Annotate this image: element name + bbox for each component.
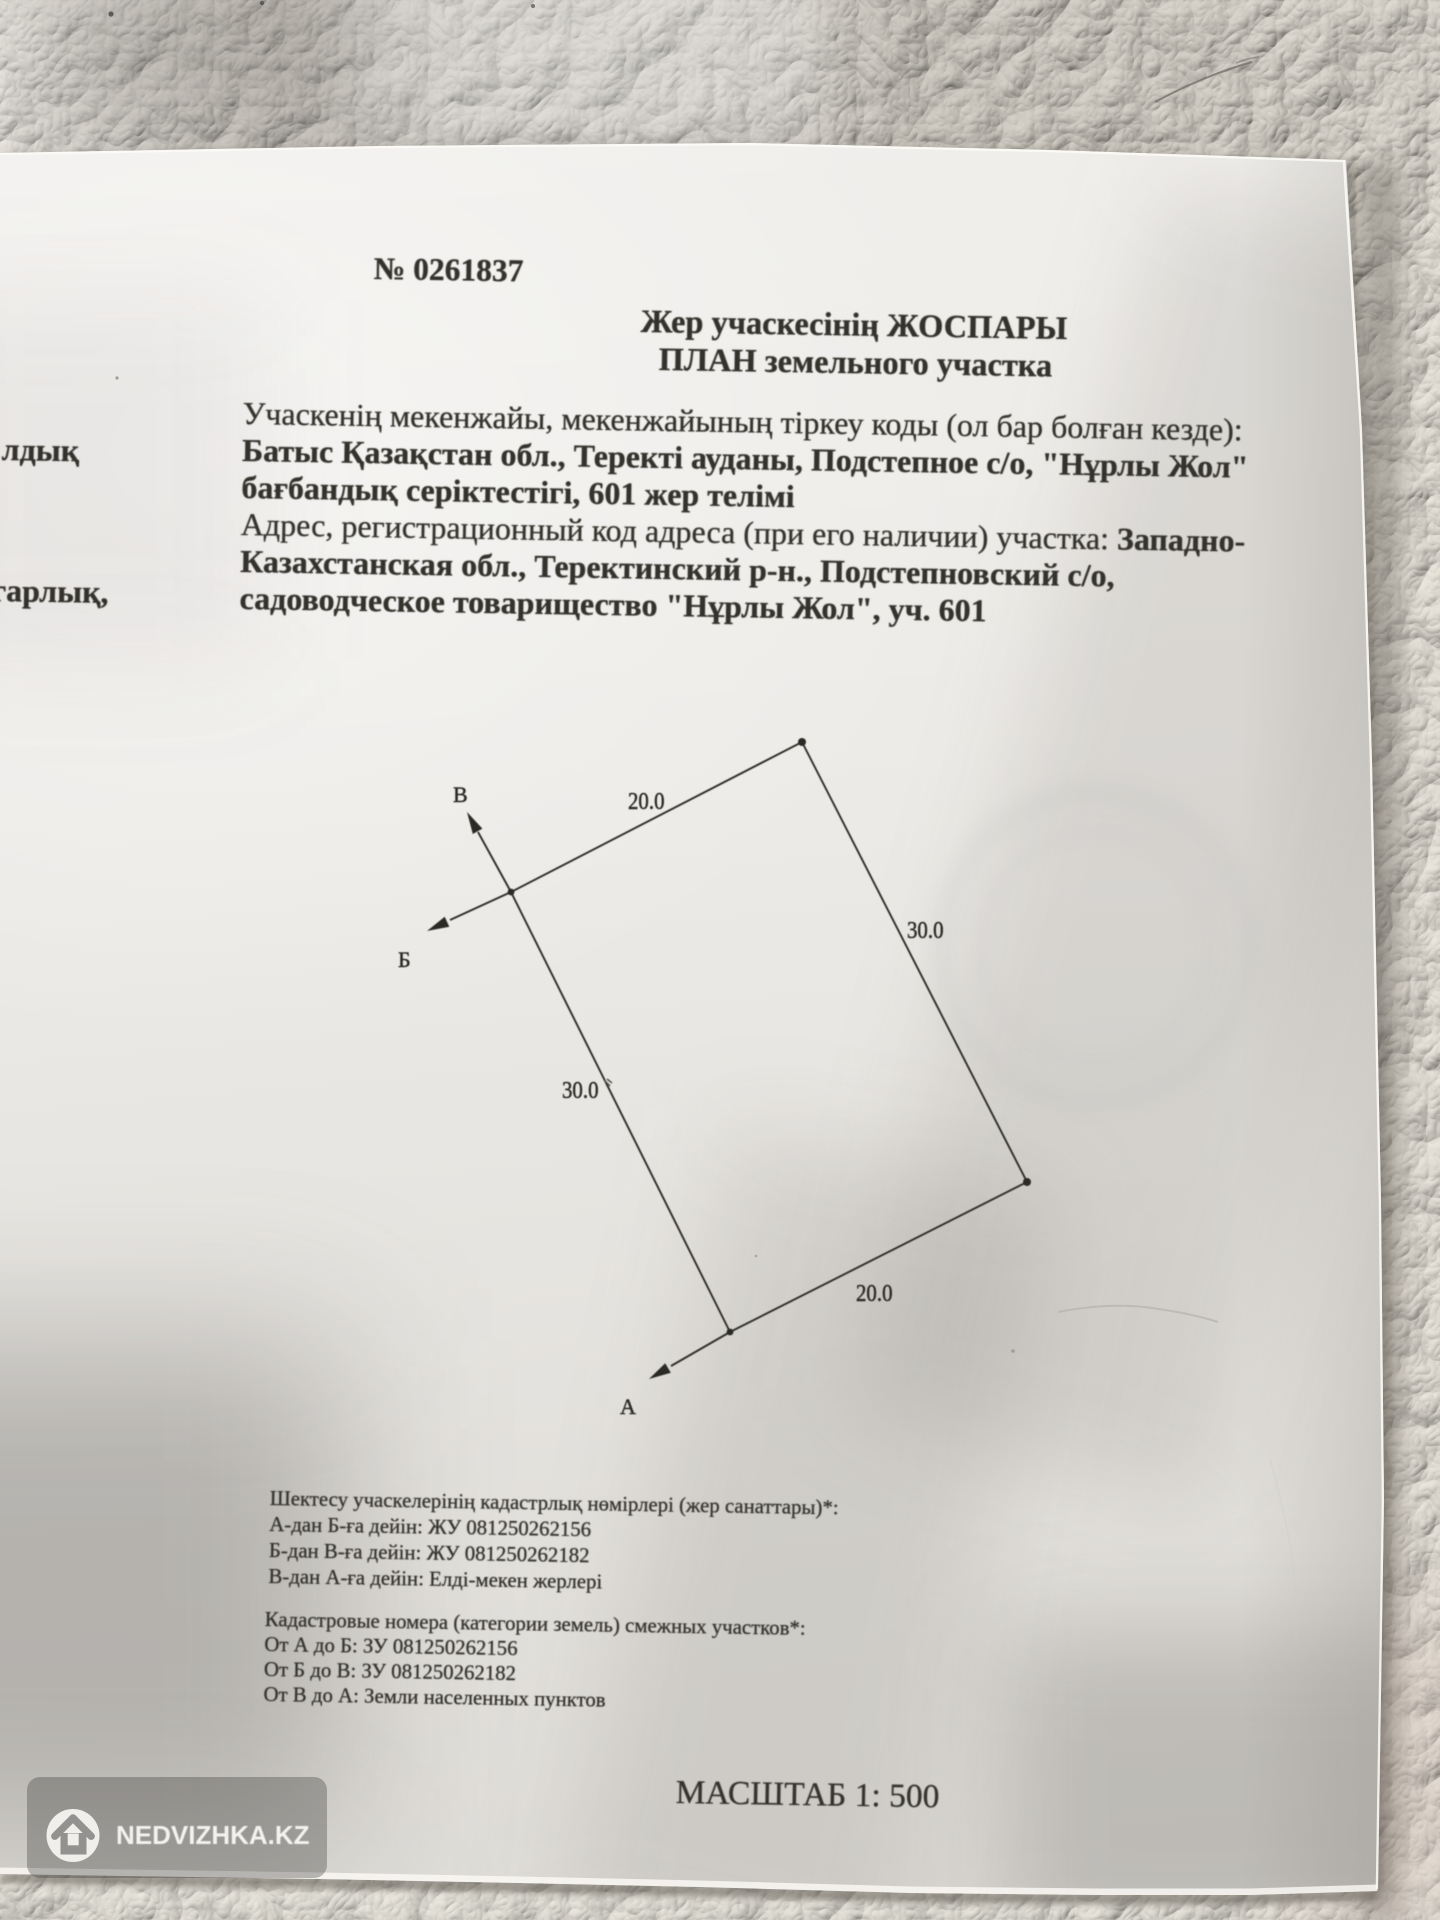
svg-text:А: А [620,1394,636,1419]
svg-text:20.0: 20.0 [628,789,665,815]
svg-text:20.0: 20.0 [856,1281,893,1307]
svg-text:30.0: 30.0 [907,918,944,944]
svg-text:В: В [453,782,468,807]
svg-text:30.0: 30.0 [562,1078,599,1104]
svg-text:Б: Б [398,947,411,972]
